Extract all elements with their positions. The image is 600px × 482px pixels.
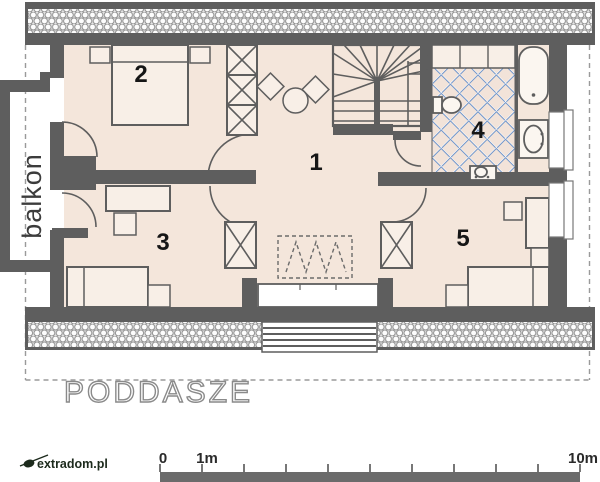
bathtub [519,47,548,104]
watermark-text: extradom.pl [37,457,108,471]
room-label-bedroom3: 3 [156,229,169,256]
room-label-bedroom2: 2 [134,61,147,88]
wall-mid-left [50,170,256,184]
balcony-label: balkon [17,153,47,239]
wall-top-hatch [28,9,592,33]
wall-left-c [50,230,64,307]
desk [106,186,170,211]
wall-bathroom-left [420,45,432,132]
balcony-door-opening-bottom [50,190,64,230]
balcony-rail-left [0,80,10,272]
small-sink [470,166,496,180]
plan-title: PODDASZE [64,376,253,409]
wall-stub-left [242,278,257,307]
nightstand [148,285,170,307]
room-label-bedroom5: 5 [456,225,469,252]
cabinet [531,248,549,268]
round-table [283,88,308,113]
floor-plan-drawing: 1 2 3 4 5 balkon PODDASZE extradom.pl 0 … [0,0,600,482]
bed [468,267,549,307]
floor-plan-page: 1 2 3 4 5 balkon PODDASZE extradom.pl 0 … [0,0,600,482]
balcony-rail-bottom [0,260,50,272]
wardrobe [225,222,256,268]
door-leaf-bathroom [393,131,421,140]
wall-right-c [549,237,567,307]
counter [432,45,515,68]
window-sill [564,110,573,170]
room2-furniture [90,45,257,135]
chair [504,202,522,220]
scale-one-label: 1m [196,450,218,467]
stair-newel-wall [374,77,380,127]
scale-bar-rule [160,472,580,482]
wardrobe [227,45,257,135]
balcony-rail-joint [40,72,50,82]
scale-ten-label: 10m [568,450,598,467]
wardrobe [381,222,412,268]
balcony-door-opening-top [50,78,64,122]
window-bottom [258,284,378,307]
chair [114,213,136,235]
nightstand [190,47,210,63]
bed [67,267,148,307]
room-label-hall: 1 [309,149,322,176]
wall-stub-right [378,278,393,307]
wall-right-a [549,33,567,112]
washbasin [519,120,548,158]
room-label-bathroom: 4 [471,117,485,144]
bed [112,45,188,125]
nightstand [90,47,110,63]
nightstand [446,285,468,307]
window-sill [564,181,573,239]
desk [526,198,549,248]
toilet [433,97,461,113]
wall-left-a [50,45,64,78]
door-leaf-balcony-bottom [52,228,88,238]
roof-strip [262,322,377,352]
